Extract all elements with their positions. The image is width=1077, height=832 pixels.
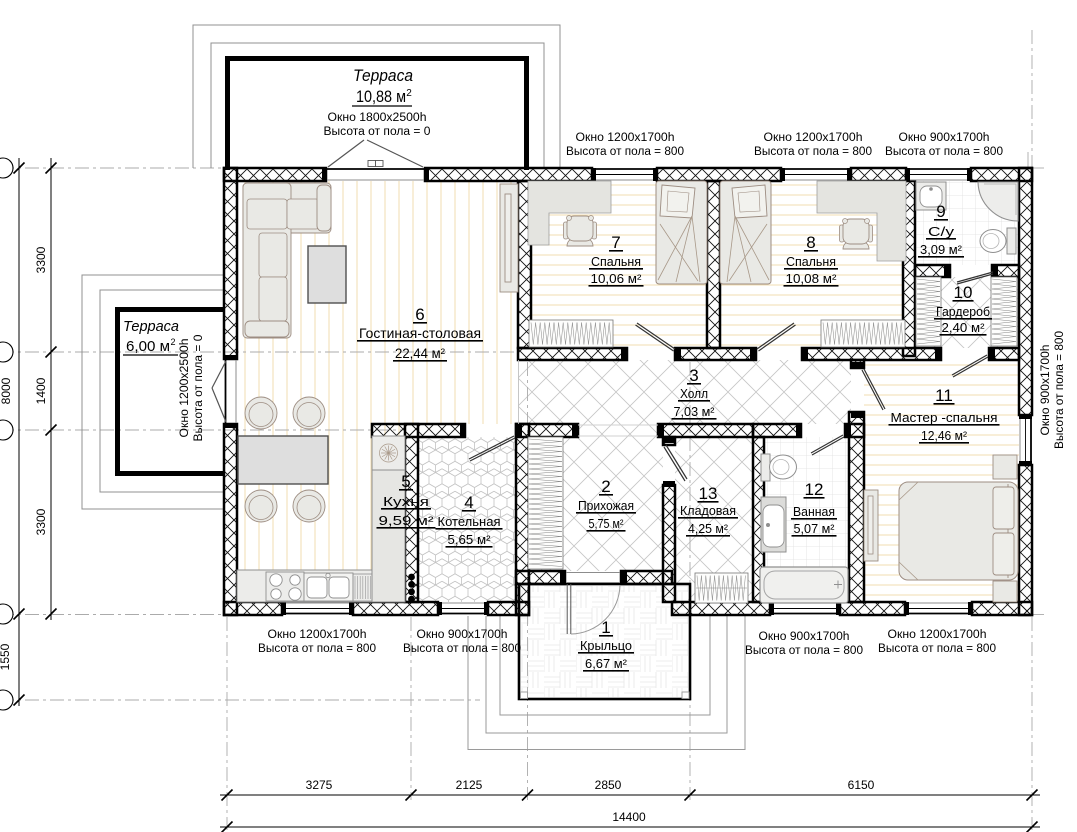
svg-text:Терраса: Терраса — [353, 66, 413, 85]
svg-text:9,59 м²: 9,59 м² — [379, 513, 435, 528]
svg-text:Окно 1800x2500h: Окно 1800x2500h — [328, 112, 427, 124]
svg-text:14400: 14400 — [612, 810, 646, 824]
svg-text:2: 2 — [170, 337, 175, 347]
svg-text:Гостиная-столовая: Гостиная-столовая — [359, 325, 481, 341]
svg-text:5,65 м²: 5,65 м² — [448, 532, 492, 547]
svg-text:22,44 м²: 22,44 м² — [395, 345, 445, 361]
svg-text:2: 2 — [406, 88, 412, 99]
svg-text:3,09 м²: 3,09 м² — [920, 242, 963, 257]
svg-text:Высота от пола = 800: Высота от пола = 800 — [754, 146, 872, 158]
svg-text:3300: 3300 — [34, 246, 48, 273]
svg-text:9: 9 — [936, 202, 945, 221]
svg-text:Спальня: Спальня — [786, 254, 836, 269]
svg-text:8: 8 — [806, 233, 815, 252]
svg-text:Высота от пола = 800: Высота от пола = 800 — [566, 146, 684, 158]
svg-text:1: 1 — [601, 618, 610, 637]
svg-text:Холл: Холл — [680, 386, 708, 401]
svg-text:6150: 6150 — [848, 778, 875, 792]
svg-text:Гардероб: Гардероб — [936, 304, 990, 319]
svg-text:3275: 3275 — [306, 778, 333, 792]
svg-text:13: 13 — [699, 484, 718, 503]
svg-text:Окно 900x1700h: Окно 900x1700h — [899, 132, 990, 144]
svg-text:3300: 3300 — [34, 508, 48, 535]
svg-text:5,07 м²: 5,07 м² — [794, 521, 836, 536]
svg-text:Окно 1200x1700h: Окно 1200x1700h — [576, 132, 675, 144]
svg-text:3: 3 — [689, 366, 698, 385]
svg-text:11: 11 — [935, 386, 953, 405]
svg-text:7: 7 — [611, 233, 620, 252]
svg-text:Высота от пола = 800: Высота от пола = 800 — [885, 146, 1003, 158]
svg-text:10,06 м²: 10,06 м² — [591, 271, 643, 286]
svg-text:Окно 1200x1700h: Окно 1200x1700h — [764, 132, 863, 144]
svg-text:2: 2 — [601, 477, 610, 496]
svg-text:1550: 1550 — [0, 643, 12, 670]
svg-text:Окно 1200x2500h: Окно 1200x2500h — [179, 339, 191, 438]
svg-text:4: 4 — [464, 493, 473, 512]
svg-text:8000: 8000 — [0, 377, 13, 404]
svg-text:Ванная: Ванная — [793, 504, 835, 519]
svg-text:Окно 1200x1700h: Окно 1200x1700h — [888, 629, 987, 641]
svg-text:Кухня: Кухня — [383, 494, 429, 509]
svg-text:Высота от пола = 800: Высота от пола = 800 — [878, 643, 996, 655]
svg-text:4,25 м²: 4,25 м² — [688, 521, 729, 536]
svg-text:С/у: С/у — [928, 224, 955, 239]
svg-text:12,46 м²: 12,46 м² — [921, 428, 968, 443]
svg-text:Котельная: Котельная — [438, 514, 501, 529]
svg-text:2850: 2850 — [595, 778, 622, 792]
svg-text:Окно 900x1700h: Окно 900x1700h — [1040, 345, 1052, 436]
svg-text:Высота от пола = 0: Высота от пола = 0 — [193, 335, 205, 442]
svg-text:12: 12 — [805, 480, 824, 499]
svg-text:5,75 м²: 5,75 м² — [589, 516, 625, 531]
svg-text:Крыльцо: Крыльцо — [580, 638, 632, 653]
svg-text:Прихожая: Прихожая — [578, 498, 634, 513]
svg-text:6,67 м²: 6,67 м² — [585, 656, 628, 671]
svg-text:2125: 2125 — [456, 778, 483, 792]
svg-text:Высота от пола = 800: Высота от пола = 800 — [403, 643, 521, 655]
svg-text:Спальня: Спальня — [591, 254, 641, 269]
svg-text:1400: 1400 — [34, 377, 48, 404]
svg-text:Окно 1200x1700h: Окно 1200x1700h — [268, 629, 367, 641]
svg-text:2,40 м²: 2,40 м² — [942, 320, 986, 335]
svg-text:6,00 м: 6,00 м — [126, 338, 170, 355]
svg-text:6: 6 — [415, 305, 424, 324]
svg-text:10,88 м: 10,88 м — [356, 87, 406, 106]
svg-text:Окно 900x1700h: Окно 900x1700h — [417, 629, 508, 641]
svg-text:Мастер -спальня: Мастер -спальня — [891, 410, 998, 425]
svg-text:Высота от пола = 800: Высота от пола = 800 — [1054, 331, 1066, 449]
svg-text:5: 5 — [401, 472, 410, 491]
svg-text:Окно 900x1700h: Окно 900x1700h — [759, 631, 850, 643]
svg-text:Высота от пола = 0: Высота от пола = 0 — [324, 126, 431, 138]
svg-text:10: 10 — [954, 283, 973, 302]
svg-text:Кладовая: Кладовая — [680, 503, 736, 518]
svg-text:Терраса: Терраса — [123, 318, 179, 335]
svg-text:Высота от пола = 800: Высота от пола = 800 — [745, 645, 863, 657]
svg-text:10,08 м²: 10,08 м² — [786, 271, 838, 286]
svg-text:Высота от пола = 800: Высота от пола = 800 — [258, 643, 376, 655]
svg-text:7,03 м²: 7,03 м² — [674, 404, 716, 419]
